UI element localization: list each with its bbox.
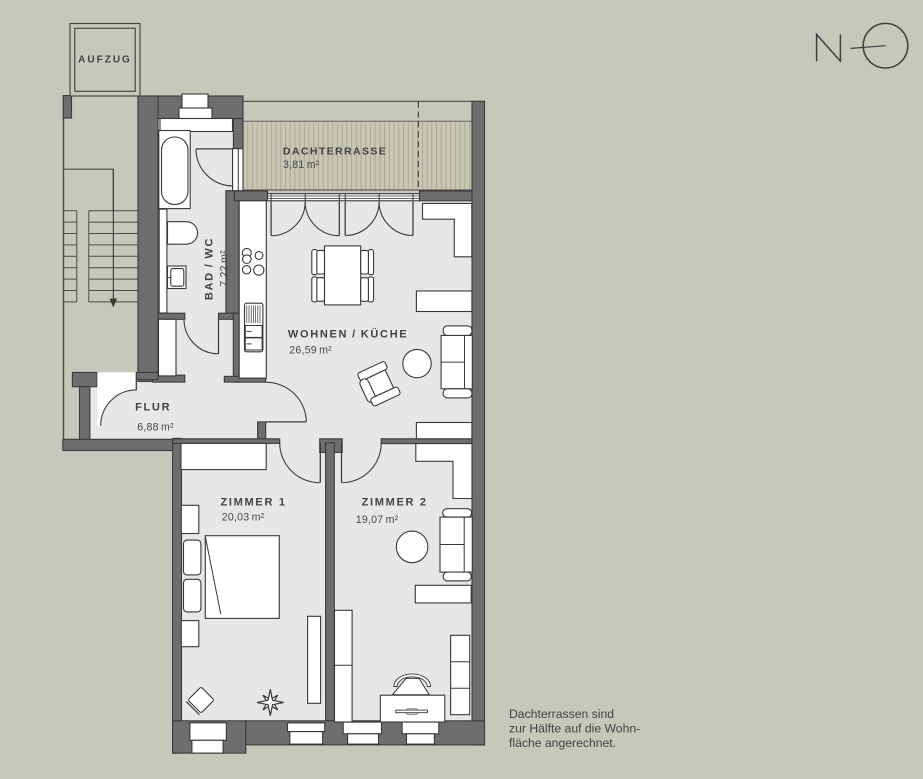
- svg-text:DACHTERRASSE: DACHTERRASSE: [283, 146, 387, 158]
- svg-text:19,07 m²: 19,07 m²: [356, 514, 399, 526]
- svg-text:ZIMMER 1: ZIMMER 1: [221, 497, 287, 509]
- svg-text:20,03 m²: 20,03 m²: [222, 512, 265, 524]
- svg-text:Dachterrassen sind: Dachterrassen sind: [509, 707, 614, 721]
- svg-text:ZIMMER 2: ZIMMER 2: [362, 497, 428, 509]
- svg-text:AUFZUG: AUFZUG: [78, 55, 132, 66]
- svg-text:BAD / WC: BAD / WC: [204, 237, 216, 300]
- svg-text:FLUR: FLUR: [135, 402, 171, 414]
- svg-text:26,59 m²: 26,59 m²: [289, 344, 332, 356]
- svg-text:fläche angerechnet.: fläche angerechnet.: [509, 736, 616, 750]
- svg-text:WOHNEN / KÜCHE: WOHNEN / KÜCHE: [288, 328, 408, 341]
- svg-text:zur Hälfte auf die Wohn-: zur Hälfte auf die Wohn-: [509, 722, 640, 736]
- svg-text:7,22 m²: 7,22 m²: [218, 250, 230, 287]
- svg-text:6,88 m²: 6,88 m²: [137, 422, 174, 434]
- svg-text:3,81 m²: 3,81 m²: [283, 159, 320, 171]
